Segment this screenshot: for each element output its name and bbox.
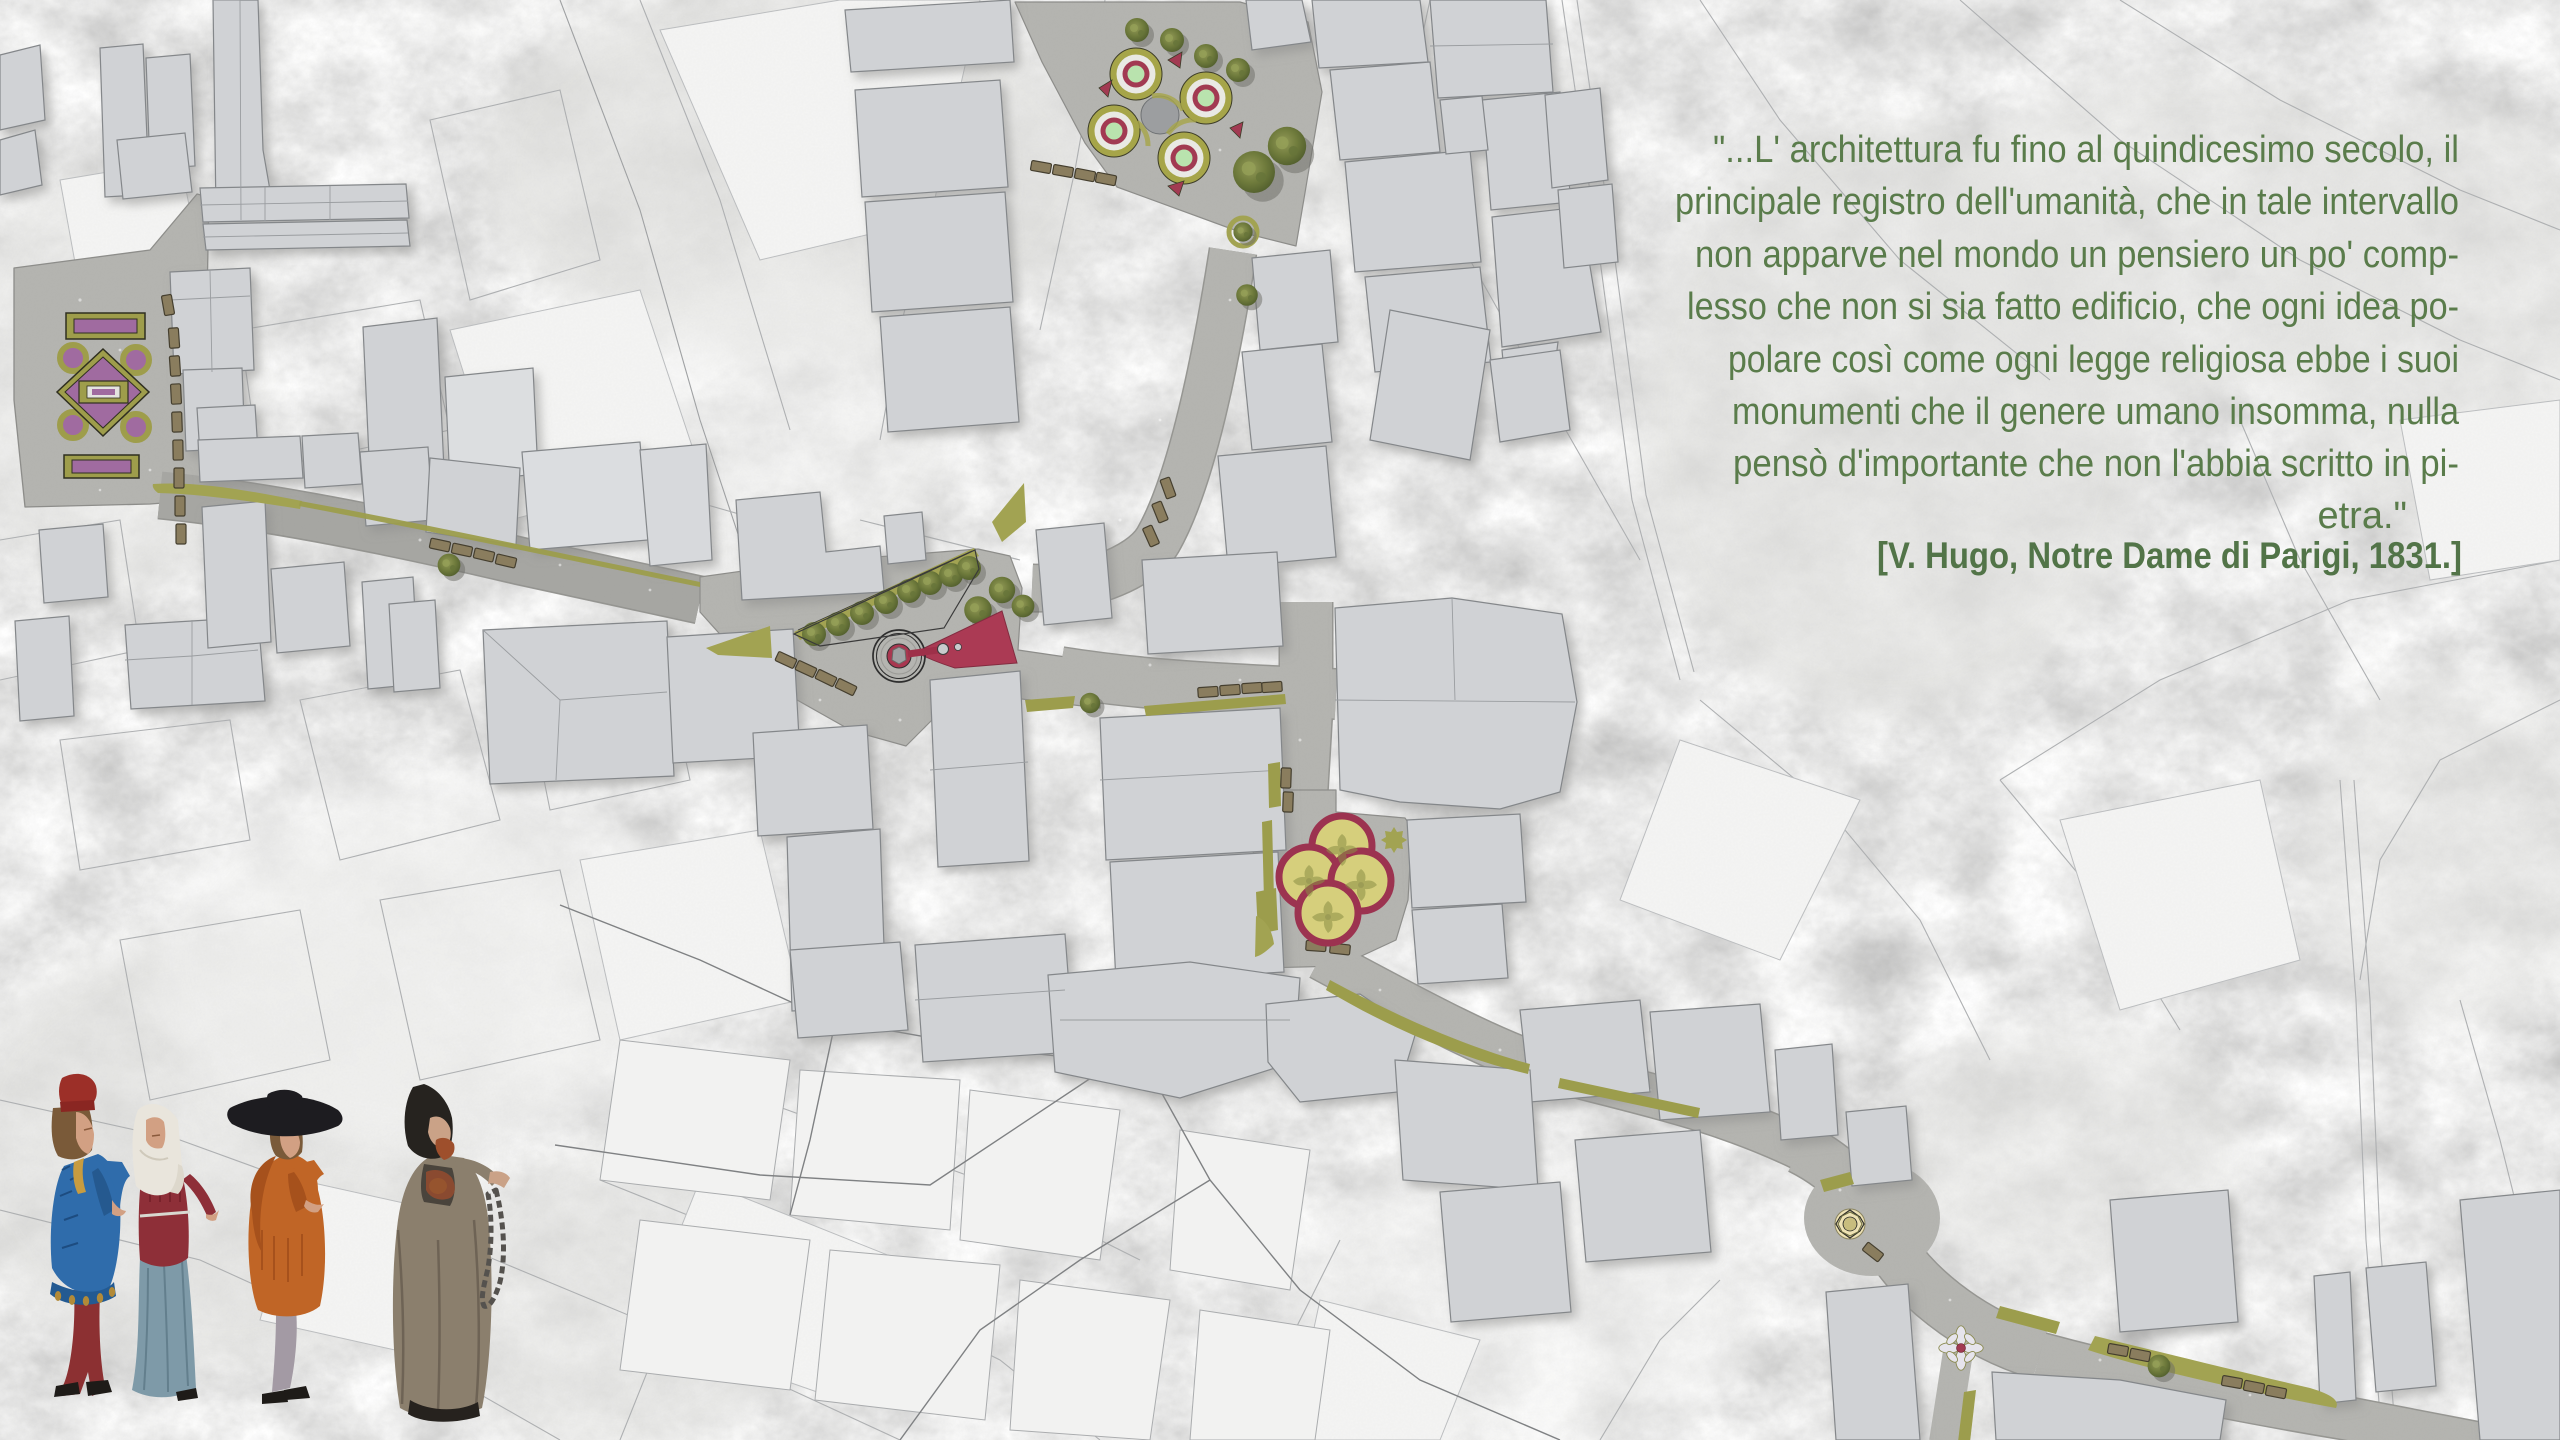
- svg-text:polare così come ogni legge re: polare così come ogni legge religiosa eb…: [1728, 339, 2459, 381]
- svg-text:monumenti che il genere umano: monumenti che il genere umano insomma, n…: [1732, 391, 2460, 433]
- svg-text:pensò d'importante che non l'a: pensò d'importante che non l'abbia scrit…: [1733, 443, 2459, 485]
- svg-text:"...L' architettura fu fino al: "...L' architettura fu fino al quindices…: [1713, 129, 2459, 171]
- svg-text:principale registro dell'umani: principale registro dell'umanità, che in…: [1675, 181, 2459, 223]
- svg-text:non apparve nel mondo un pensi: non apparve nel mondo un pensiero un po'…: [1695, 234, 2459, 276]
- svg-text:etra.": etra.": [2317, 495, 2407, 537]
- svg-text:lesso che non si sia fatto edi: lesso che non si sia fatto edificio, che…: [1687, 286, 2459, 328]
- svg-text:[V. Hugo, Notre Dame di Parigi: [V. Hugo, Notre Dame di Parigi, 1831.]: [1877, 535, 2462, 576]
